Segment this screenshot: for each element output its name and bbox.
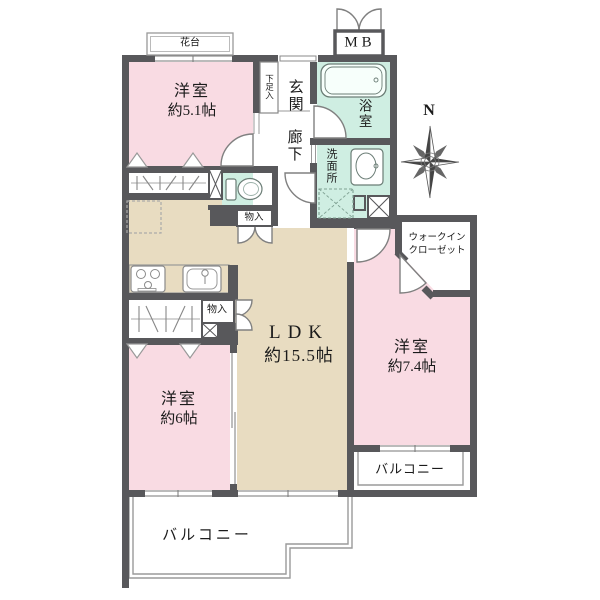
balcony-east-label: バルコニー [375,462,445,479]
compass-north-label: N [423,101,435,121]
bedroom-a-size: 約5.1帖 [168,103,217,122]
ldk-label: LDK 約15.5帖 [264,321,334,367]
floor-plan: 洋室 約5.1帖 洋室 約6帖 洋室 約7.4帖 LDK 約15.5帖 玄関 廊… [0,0,600,600]
kitchen-storage-label: 物入 [207,305,227,318]
bedroom-c-size: 約7.4帖 [388,359,437,378]
meter-box-door-right [359,9,381,31]
bathtub-icon [321,64,386,97]
walk-in-closet-line2: クローゼット [408,245,465,258]
hall-storage-label: 物入 [244,212,263,224]
washbasin-icon [351,149,383,185]
washroom-label: 洗面所 [324,148,338,184]
shoe-cabinet-label: 下足入 [264,74,275,100]
hallway-label: 廊下 [283,129,302,163]
bedroom-b-size: 約6帖 [160,411,198,430]
stove-icon [131,266,165,292]
flower-stand-label: 花台 [180,38,200,51]
ldk-size: 約15.5帖 [264,345,334,367]
bedroom-b-name: 洋室 [160,390,198,410]
walk-in-closet-label: ウォークイン クローゼット [408,232,465,258]
kitchen-sink-icon [183,266,221,292]
compass-icon [401,126,459,198]
bedroom-b-label: 洋室 約6帖 [160,390,198,430]
washing-machine-space [319,189,353,218]
walk-in-closet-line1: ウォークイン [408,232,465,245]
bathroom-label: 浴室 [355,99,372,130]
bedroom-a-label: 洋室 約5.1帖 [168,82,217,122]
toilet-icon [226,179,262,201]
sliding-door [230,353,237,484]
ldk-name: LDK [264,321,334,345]
meter-box-label: MB [344,33,375,52]
meter-box-door-left [337,9,359,31]
bedroom-c-label: 洋室 約7.4帖 [388,338,437,378]
bedroom-c-name: 洋室 [388,338,437,358]
entrance-door [280,56,316,61]
balcony-south-label: バルコニー [162,526,252,545]
entrance-label: 玄関 [284,79,303,113]
bedroom-a-name: 洋室 [168,82,217,102]
